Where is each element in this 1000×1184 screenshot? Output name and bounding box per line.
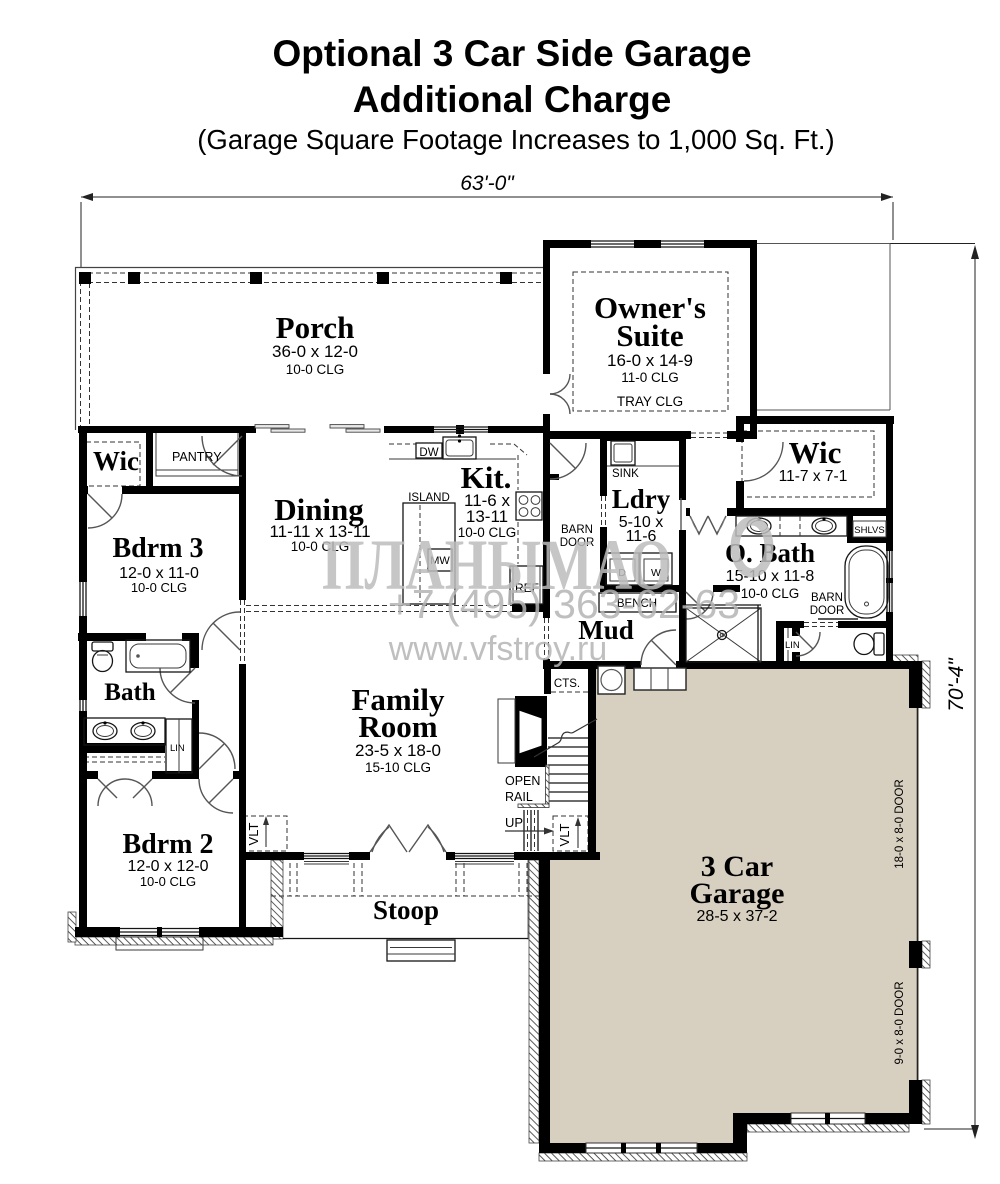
- svg-text:15-10 CLG: 15-10 CLG: [365, 760, 431, 775]
- svg-text:(Garage Square Footage Increas: (Garage Square Footage Increases to 1,00…: [197, 124, 834, 155]
- svg-text:+7 (495) 363-62-63: +7 (495) 363-62-63: [388, 581, 740, 627]
- svg-text:11-0 CLG: 11-0 CLG: [621, 370, 679, 385]
- svg-text:Garage: Garage: [690, 877, 785, 910]
- svg-text:Room: Room: [358, 709, 437, 744]
- svg-text:18-0 x 8-0 DOOR: 18-0 x 8-0 DOOR: [894, 779, 906, 868]
- svg-text:36-0 x 12-0: 36-0 x 12-0: [272, 342, 358, 361]
- svg-text:OPEN: OPEN: [505, 774, 540, 788]
- svg-text:LIN: LIN: [170, 743, 185, 754]
- svg-text:CTS.: CTS.: [554, 678, 580, 690]
- svg-text:Stoop: Stoop: [373, 895, 439, 925]
- svg-text:Ldry: Ldry: [612, 484, 671, 514]
- svg-text:Porch: Porch: [276, 310, 355, 345]
- svg-text:www.vfstroy.ru: www.vfstroy.ru: [388, 630, 608, 668]
- svg-text:Suite: Suite: [616, 318, 683, 353]
- svg-text:Additional Charge: Additional Charge: [353, 79, 672, 120]
- svg-text:10-0 CLG: 10-0 CLG: [286, 362, 345, 377]
- svg-text:11-7 x 7-1: 11-7 x 7-1: [779, 468, 848, 485]
- svg-text:16-0 x 14-9: 16-0 x 14-9: [607, 351, 693, 370]
- svg-text:UP: UP: [505, 815, 523, 830]
- svg-text:12-0 x 12-0: 12-0 x 12-0: [128, 858, 209, 875]
- svg-text:BARN: BARN: [811, 592, 843, 604]
- svg-text:Bath: Bath: [104, 679, 156, 706]
- svg-text:Bdrm 3: Bdrm 3: [113, 533, 204, 564]
- svg-text:PANTRY: PANTRY: [172, 450, 222, 464]
- svg-text:9-0 x 8-0 DOOR: 9-0 x 8-0 DOOR: [894, 981, 906, 1064]
- svg-text:23-5 x 18-0: 23-5 x 18-0: [355, 741, 441, 760]
- svg-text:Wic: Wic: [789, 435, 842, 470]
- svg-text:VLT: VLT: [557, 824, 572, 847]
- svg-text:DW: DW: [419, 447, 438, 459]
- svg-text:10-0 CLG: 10-0 CLG: [131, 580, 187, 595]
- svg-text:Bdrm 2: Bdrm 2: [123, 829, 214, 860]
- svg-text:10-0 CLG: 10-0 CLG: [140, 874, 196, 889]
- svg-text:10-0 CLG: 10-0 CLG: [741, 586, 800, 601]
- svg-text:70'-4": 70'-4": [945, 657, 968, 712]
- svg-text:ISLAND: ISLAND: [408, 492, 450, 504]
- svg-text:Wic: Wic: [93, 446, 139, 476]
- svg-text:TRAY CLG: TRAY CLG: [617, 394, 683, 409]
- svg-text:Kit.: Kit.: [461, 460, 512, 495]
- svg-text:28-5 x 37-2: 28-5 x 37-2: [697, 908, 778, 925]
- svg-text:SINK: SINK: [612, 468, 639, 480]
- svg-text:LIN: LIN: [785, 640, 800, 651]
- svg-text:SHLVS: SHLVS: [854, 525, 884, 536]
- svg-text:RAIL: RAIL: [505, 790, 533, 804]
- svg-text:VLT: VLT: [246, 823, 261, 846]
- svg-text:DOOR: DOOR: [810, 605, 845, 617]
- svg-text:63'-0": 63'-0": [460, 172, 515, 195]
- svg-text:Optional 3 Car Side Garage: Optional 3 Car Side Garage: [272, 33, 751, 74]
- svg-text:13-11: 13-11: [466, 507, 508, 526]
